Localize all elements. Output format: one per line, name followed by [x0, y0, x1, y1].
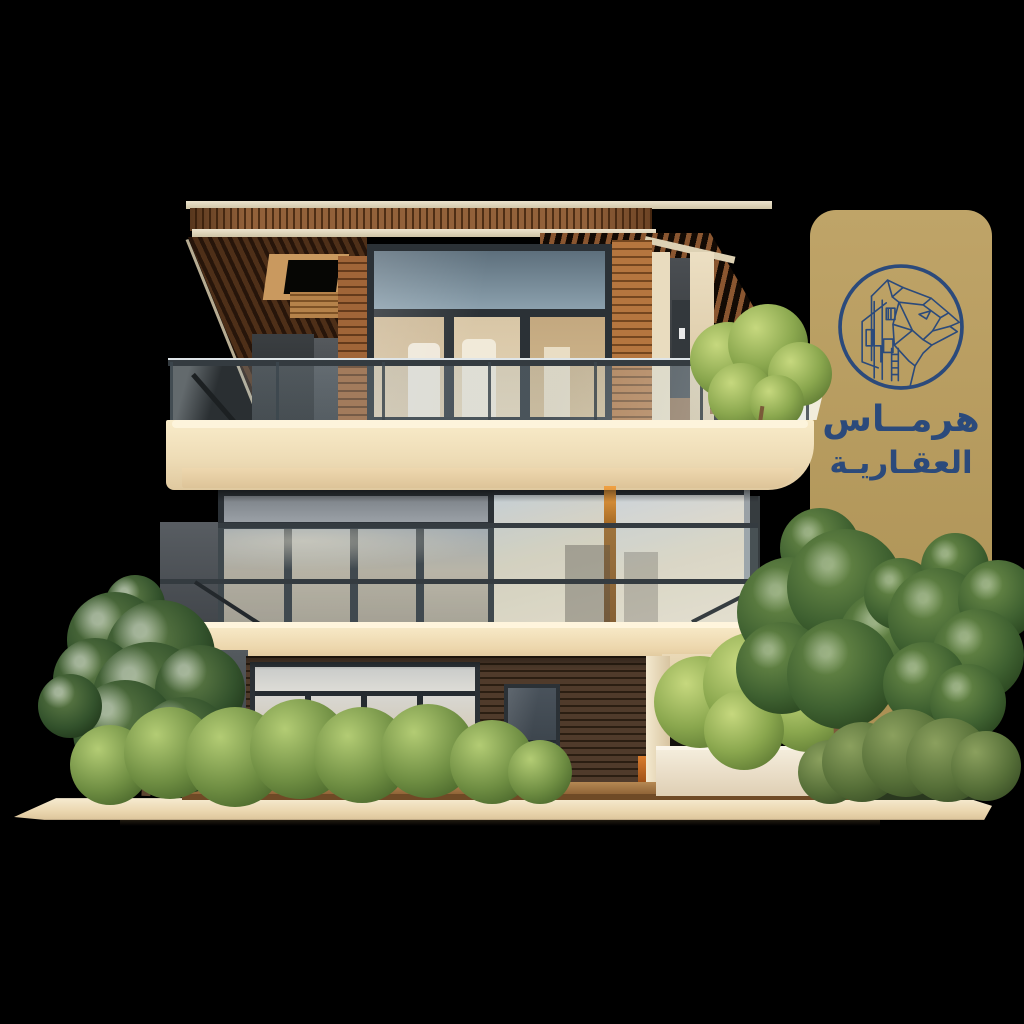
panther-building-logo-icon	[834, 260, 968, 394]
brand-name-line2: العقـاريـة	[810, 448, 992, 479]
right-hedge-foliage	[951, 731, 1021, 801]
roof-slat-fascia	[190, 208, 652, 231]
ground-transom	[255, 667, 475, 691]
balustrade-post	[488, 362, 491, 422]
eave-opening	[284, 260, 341, 294]
balustrade-post	[382, 362, 385, 422]
right-tree-foliage	[787, 619, 897, 729]
balustrade-post	[170, 362, 173, 422]
middle-slab-top-light	[202, 622, 786, 628]
villa-illustration: هرمــاس العقـاريـة	[0, 0, 1024, 1024]
doorbell-panel	[679, 328, 685, 339]
balustrade-post	[594, 362, 597, 422]
middle-rail-upper	[218, 523, 758, 528]
hedge-foliage	[508, 740, 572, 804]
middle-rail-lower	[160, 579, 758, 584]
brand-name-line1: هرمــاس	[810, 402, 992, 438]
upper-slab-top-light	[172, 420, 808, 428]
middle-balustrade-glass	[218, 524, 758, 628]
upper-slab-shadow	[218, 490, 758, 502]
upper-slab-lip	[182, 468, 794, 488]
amber-accent-strip	[638, 756, 646, 784]
pavement-shadow	[120, 820, 880, 826]
balustrade-post	[276, 362, 279, 422]
